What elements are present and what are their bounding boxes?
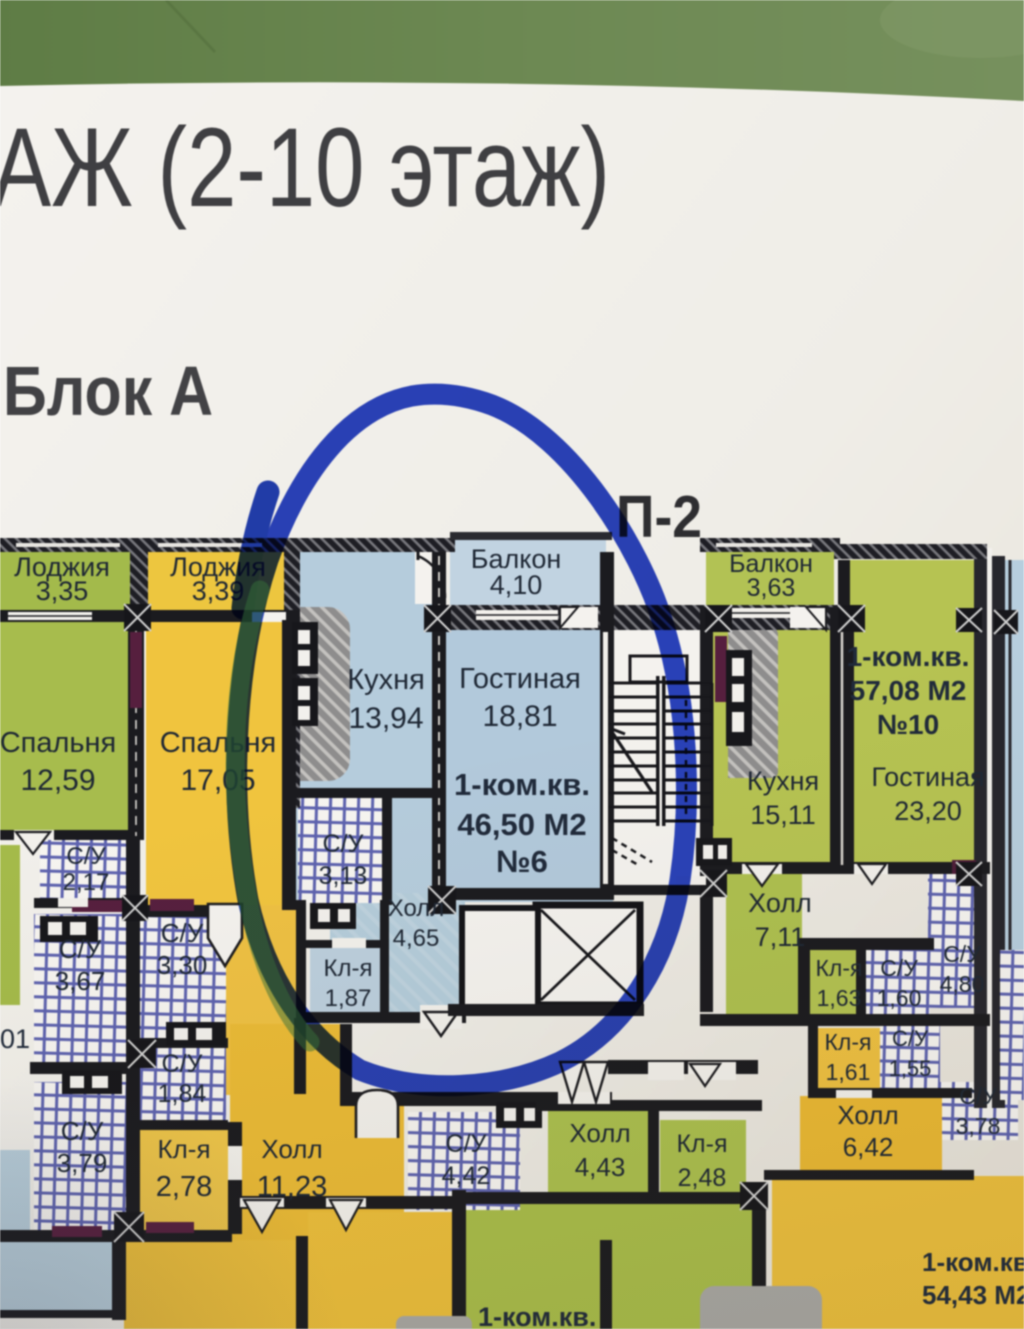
svg-text:54,43 М2: 54,43 М2 <box>922 1280 1024 1310</box>
svg-text:Холл: Холл <box>569 1118 630 1148</box>
svg-text:Гостиная: Гостиная <box>871 762 984 792</box>
svg-text:Холл: Холл <box>388 895 445 922</box>
svg-text:3,13: 3,13 <box>319 862 368 890</box>
svg-text:2,48: 2,48 <box>678 1164 727 1192</box>
svg-text:13,94: 13,94 <box>348 702 423 735</box>
svg-text:12,59: 12,59 <box>20 764 95 797</box>
svg-text:4,80: 4,80 <box>940 971 985 997</box>
svg-text:4,10: 4,10 <box>490 570 543 600</box>
svg-text:6,42: 6,42 <box>843 1132 894 1162</box>
svg-text:46,50 М2: 46,50 М2 <box>457 807 586 842</box>
svg-text:3,79: 3,79 <box>57 1148 108 1178</box>
svg-text:Кухня: Кухня <box>347 664 425 696</box>
svg-text:Холл: Холл <box>261 1134 322 1164</box>
svg-text:С/У: С/У <box>61 1116 104 1146</box>
svg-text:АЖ (2-10 этаж): АЖ (2-10 этаж) <box>0 105 610 230</box>
svg-text:3,67: 3,67 <box>55 966 106 996</box>
svg-text:15,11: 15,11 <box>750 800 816 830</box>
svg-text:3,78: 3,78 <box>956 1113 1001 1139</box>
svg-text:Кл-я: Кл-я <box>825 1029 872 1055</box>
svg-text:С/У: С/У <box>161 918 204 948</box>
svg-text:С/У: С/У <box>446 1130 487 1158</box>
svg-text:С/У: С/У <box>943 941 981 967</box>
svg-text:1,61: 1,61 <box>826 1059 871 1085</box>
svg-text:18,81: 18,81 <box>482 700 557 733</box>
svg-text:57,08 М2: 57,08 М2 <box>850 675 967 706</box>
svg-text:4,65: 4,65 <box>393 925 440 952</box>
svg-text:1-ком.кв.: 1-ком.кв. <box>454 767 590 802</box>
svg-text:Кл-я: Кл-я <box>816 955 863 981</box>
svg-text:№6: №6 <box>496 844 548 879</box>
svg-text:Спальня: Спальня <box>0 727 116 759</box>
svg-text:Кухня: Кухня <box>747 766 819 796</box>
svg-text:№10: №10 <box>877 709 939 740</box>
svg-text:4,43: 4,43 <box>575 1152 626 1182</box>
svg-text:Кл-я: Кл-я <box>676 1130 727 1158</box>
svg-text:1,60: 1,60 <box>877 985 922 1011</box>
svg-text:3,35: 3,35 <box>36 576 89 606</box>
svg-text:2,78: 2,78 <box>156 1171 212 1203</box>
svg-text:1-ком.кв.: 1-ком.кв. <box>478 1302 596 1329</box>
svg-text:С/У: С/У <box>959 1083 997 1109</box>
svg-text:2,17: 2,17 <box>63 869 110 896</box>
svg-text:7,11: 7,11 <box>755 922 806 952</box>
svg-text:3,30: 3,30 <box>157 950 208 980</box>
svg-text:С/У: С/У <box>162 1050 203 1078</box>
svg-text:1,87: 1,87 <box>325 985 372 1012</box>
svg-text:01: 01 <box>0 1024 30 1054</box>
svg-text:С/У: С/У <box>880 955 918 981</box>
svg-text:1,63: 1,63 <box>817 985 862 1011</box>
svg-text:23,20: 23,20 <box>894 796 962 826</box>
svg-text:Гостиная: Гостиная <box>459 663 581 695</box>
svg-text:1-ком.кв: 1-ком.кв <box>922 1247 1024 1277</box>
svg-text:3,63: 3,63 <box>747 574 796 602</box>
svg-text:С/У: С/У <box>892 1026 929 1051</box>
svg-text:4,42: 4,42 <box>442 1162 491 1190</box>
svg-text:1,55: 1,55 <box>889 1056 932 1081</box>
svg-text:1-ком.кв.: 1-ком.кв. <box>847 641 970 672</box>
svg-text:Холл: Холл <box>748 888 812 918</box>
svg-text:Холл: Холл <box>837 1100 898 1130</box>
svg-text:С/У: С/У <box>66 843 106 870</box>
svg-text:С/У: С/У <box>59 934 102 964</box>
svg-text:Блок А: Блок А <box>3 352 213 430</box>
svg-text:1,84: 1,84 <box>158 1080 207 1108</box>
svg-text:С/У: С/У <box>323 830 364 858</box>
svg-text:Кл-я: Кл-я <box>157 1134 210 1164</box>
svg-text:Кл-я: Кл-я <box>324 955 373 982</box>
svg-text:11,23: 11,23 <box>257 1171 327 1203</box>
svg-text:Спальня: Спальня <box>160 727 277 759</box>
